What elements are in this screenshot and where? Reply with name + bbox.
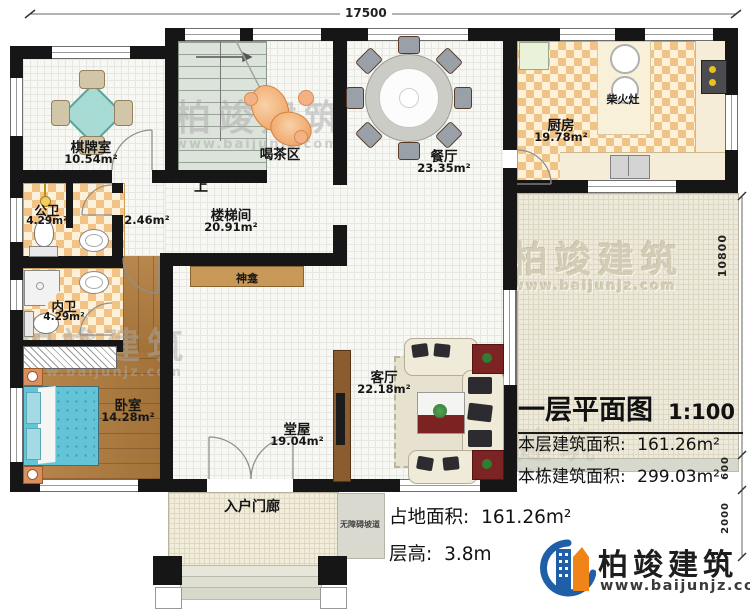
area-bedroom: 14.28m² bbox=[101, 410, 154, 424]
plan-scale: 1:100 bbox=[668, 400, 735, 424]
staircase-divider bbox=[220, 41, 221, 141]
game-chair-w bbox=[51, 100, 70, 126]
bed-pillow-2 bbox=[26, 428, 41, 460]
brand-website: www.baijunjz.com bbox=[600, 578, 750, 594]
wall-gameroom-bottom-a bbox=[10, 170, 112, 183]
site-area-value: 161.26m² bbox=[481, 507, 571, 528]
dim-tick-right bbox=[738, 192, 746, 561]
wall-bath-right-a bbox=[112, 183, 123, 193]
tea-cushion-2 bbox=[298, 90, 314, 106]
window-living-patio bbox=[503, 290, 517, 385]
label-stairs-up: 上 bbox=[194, 176, 208, 196]
wall-dining-kitchen-a bbox=[503, 28, 517, 150]
window-kitchen-top-a bbox=[560, 28, 615, 41]
area-game-room: 10.54m² bbox=[64, 152, 117, 166]
dining-table-hub bbox=[399, 88, 419, 108]
side-table-plant-1 bbox=[482, 353, 492, 363]
kitchen-sink bbox=[610, 155, 650, 179]
bed-pillow-1 bbox=[26, 392, 41, 424]
sofa-pillow-4 bbox=[442, 456, 459, 471]
floor-hall bbox=[123, 256, 160, 352]
floor-plan: 柏竣建筑 www.baijunjz.com 柏竣建筑 www.baijunjz.… bbox=[0, 0, 750, 611]
wall-dining-kitchen-b bbox=[503, 168, 517, 193]
sofa-pillow-1 bbox=[411, 343, 429, 358]
window-gameroom-top bbox=[52, 46, 130, 59]
wall-stub-dining-living bbox=[333, 225, 347, 266]
coffee-table-plant-icon bbox=[433, 404, 447, 418]
area-kitchen: 19.78m² bbox=[534, 130, 587, 144]
shrine-label: 神龛 bbox=[236, 272, 258, 285]
stove-burner-1 bbox=[610, 44, 640, 74]
plan-title-row: 一层平面图 1:100 bbox=[518, 388, 743, 434]
cooktop-burner-1 bbox=[709, 66, 716, 73]
window-publicbath-left bbox=[10, 198, 23, 242]
storey-height-line: 层高: 3.8m bbox=[389, 540, 492, 566]
cooktop-burner-2 bbox=[709, 79, 716, 86]
storey-height-label: 层高: bbox=[389, 544, 432, 565]
sink-basin-public bbox=[85, 234, 103, 247]
window-stair-top bbox=[185, 28, 240, 41]
closet bbox=[23, 346, 117, 369]
label-wood-stove: 柴火灶 bbox=[607, 91, 640, 107]
lamp-cord bbox=[44, 183, 46, 196]
window-kitchen-right bbox=[725, 95, 738, 150]
kitchen-sink-divider bbox=[628, 156, 629, 176]
sofa-pillow-3 bbox=[416, 456, 434, 472]
area-private-bath: 4.29m² bbox=[43, 311, 84, 323]
dim-top-width: 17500 bbox=[340, 6, 392, 20]
wall-mainhall-bottom-a bbox=[173, 479, 207, 492]
porch-step-3 bbox=[180, 587, 322, 600]
wall-tea-dining bbox=[333, 28, 347, 185]
sofa-cushion-2 bbox=[467, 403, 493, 423]
area-under-stair: 2.46m² bbox=[124, 213, 169, 227]
porch-column-left bbox=[153, 556, 182, 585]
wall-stair-left bbox=[165, 28, 178, 170]
sink-basin-private bbox=[85, 276, 103, 289]
building-area-value: 299.03m² bbox=[637, 467, 720, 487]
dining-chair-7 bbox=[346, 87, 364, 109]
porch-column-right bbox=[318, 556, 347, 585]
sofa-cushion-3 bbox=[468, 430, 492, 447]
toilet-tank-public bbox=[29, 246, 58, 257]
wall-gameroom-bottom-b bbox=[152, 170, 267, 183]
label-entry-porch: 入户门廊 bbox=[224, 496, 280, 516]
brand-logo-icon bbox=[538, 537, 596, 601]
gas-cooktop bbox=[701, 60, 727, 94]
floor-area-line: 本层建筑面积: 161.26m² bbox=[518, 430, 720, 455]
area-dining-room: 23.35m² bbox=[417, 161, 470, 175]
porch-column-base-left bbox=[155, 587, 182, 609]
bed-duvet bbox=[54, 388, 95, 462]
dining-chair-1 bbox=[398, 36, 420, 54]
tv-icon bbox=[336, 393, 345, 445]
sofa-pillow-2 bbox=[433, 343, 450, 358]
sofa-cushion-1 bbox=[468, 377, 492, 394]
fridge bbox=[519, 42, 549, 70]
window-bedroom-left bbox=[10, 388, 23, 462]
window-kitchen-bottom bbox=[588, 180, 676, 193]
plan-title: 一层平面图 bbox=[518, 395, 653, 426]
site-area-label: 占地面积: bbox=[389, 507, 469, 528]
area-public-bath: 4.29m² bbox=[26, 215, 67, 227]
label-tea-area: 喝茶区 bbox=[260, 143, 301, 163]
floor-area-label: 本层建筑面积: bbox=[518, 435, 626, 455]
tea-cushion-3 bbox=[294, 130, 308, 144]
site-area-line: 占地面积: 161.26m² bbox=[389, 503, 571, 529]
area-living-room: 22.18m² bbox=[357, 382, 410, 396]
shrine-shelf: 神龛 bbox=[190, 266, 304, 287]
window-gameroom-left bbox=[10, 78, 23, 136]
tea-cushion-1 bbox=[244, 92, 258, 106]
building-area-line: 本栋建筑面积: 299.03m² bbox=[518, 462, 720, 487]
window-bedroom-bottom bbox=[40, 479, 138, 492]
building-area-label: 本栋建筑面积: bbox=[518, 467, 626, 487]
wall-hall-right bbox=[160, 253, 173, 492]
dim-right-step: 600 bbox=[720, 456, 731, 480]
dim-right-height: 10800 bbox=[716, 234, 729, 277]
wall-bath-divider bbox=[10, 256, 123, 268]
window-tea-top bbox=[253, 28, 321, 41]
wall-mainhall-top bbox=[160, 253, 345, 266]
porch-column-base-right bbox=[320, 587, 347, 609]
nightstand-lamp-2 bbox=[27, 469, 38, 480]
wall-bath-right-b bbox=[112, 215, 123, 256]
dining-chair-3 bbox=[454, 87, 472, 109]
window-kitchen-top-b bbox=[645, 28, 713, 41]
area-stair-hall: 20.91m² bbox=[204, 220, 257, 234]
game-chair-e bbox=[114, 100, 133, 126]
label-ramp: 无障碍坡道 bbox=[340, 519, 380, 530]
side-table-plant-2 bbox=[482, 459, 492, 469]
floor-area-value: 161.26m² bbox=[637, 435, 720, 455]
storey-height-value: 3.8m bbox=[444, 544, 491, 565]
dining-chair-5 bbox=[398, 142, 420, 160]
shower-drain bbox=[36, 282, 44, 290]
game-chair-n bbox=[79, 70, 105, 89]
nightstand-lamp-1 bbox=[27, 371, 38, 382]
window-privatebath-left bbox=[10, 280, 23, 310]
dim-right-porch: 2000 bbox=[720, 502, 731, 534]
area-main-hall: 19.04m² bbox=[270, 434, 323, 448]
